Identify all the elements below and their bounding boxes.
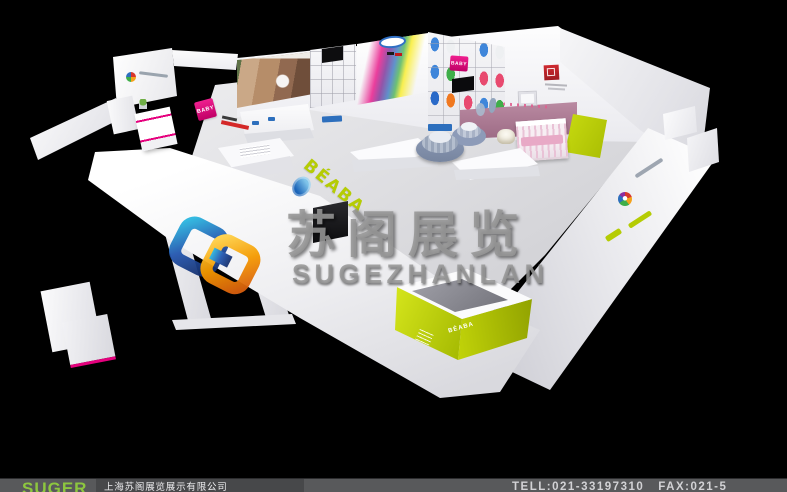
wall-decor-oval xyxy=(476,103,485,116)
blue-sign xyxy=(252,121,259,125)
round-product-display-top xyxy=(429,131,451,143)
watermark-title: 苏阁展览 xyxy=(286,210,530,260)
fax-number: FAX:021-5 xyxy=(658,481,727,492)
chain-link-logo-icon xyxy=(152,197,280,315)
pedestal-box xyxy=(62,314,116,368)
company-name-box: 上海苏阁展览展示有限公司 xyxy=(96,479,304,492)
tv-screen xyxy=(452,76,474,93)
suger-logo: SUGER xyxy=(22,480,87,492)
company-name: 上海苏阁展览展示有限公司 xyxy=(104,479,228,492)
telephone-number: TELL:021-33197310 xyxy=(512,481,644,492)
small-label-black xyxy=(387,52,394,55)
crib-mattress xyxy=(521,135,564,147)
small-label-red xyxy=(395,53,402,56)
blue-sign xyxy=(428,124,452,131)
company-circle-logo xyxy=(618,192,632,206)
blue-sign xyxy=(322,115,342,122)
striped-counter xyxy=(134,107,177,152)
armchair xyxy=(497,129,515,144)
booth-top-rim xyxy=(172,44,242,74)
company-circle-logo xyxy=(126,72,136,82)
red-logo-glyph xyxy=(547,68,555,76)
plant xyxy=(139,99,147,109)
watermark-subtitle: SUGEZHANLAN xyxy=(292,261,549,288)
baby-logo-back: BABY xyxy=(449,55,468,71)
red-square-logo xyxy=(544,65,560,81)
booth-render-image: BABY BÉABA BABY xyxy=(0,0,787,492)
watermark-chain-logo xyxy=(152,197,280,315)
round-product-display-top xyxy=(461,122,477,131)
blue-sign xyxy=(268,117,275,121)
footer-bar: SUGER 上海苏阁展览展示有限公司 TELL:021-33197310FAX:… xyxy=(0,478,787,492)
contact-info: TELL:021-33197310FAX:021-5 xyxy=(512,481,727,492)
